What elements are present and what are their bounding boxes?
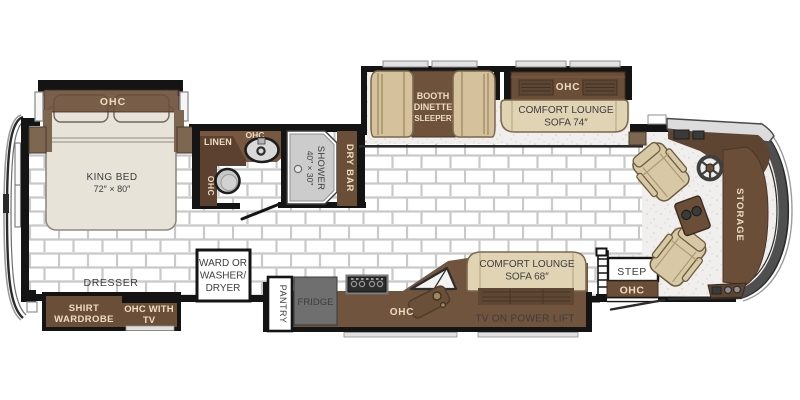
svg-text:DRESSER: DRESSER (84, 277, 139, 289)
svg-text:SOFA 74″: SOFA 74″ (544, 118, 588, 129)
svg-text:DINETTE: DINETTE (414, 102, 453, 112)
svg-text:SHOWER: SHOWER (315, 146, 326, 191)
svg-text:LINEN: LINEN (204, 137, 232, 147)
svg-text:BOOTH: BOOTH (417, 91, 450, 101)
svg-text:(SLEEPER): (SLEEPER) (412, 114, 455, 123)
svg-text:KING BED: KING BED (87, 172, 138, 183)
svg-text:OHC: OHC (100, 96, 126, 108)
svg-text:STEP: STEP (617, 266, 646, 278)
svg-text:TV: TV (143, 315, 156, 326)
svg-text:TV ON POWER LIFT: TV ON POWER LIFT (475, 314, 574, 325)
svg-text:OHC WITH: OHC WITH (124, 304, 174, 315)
svg-text:FRIDGE: FRIDGE (298, 297, 334, 308)
svg-text:STORAGE: STORAGE (734, 188, 745, 242)
svg-text:DRY BAR: DRY BAR (344, 144, 355, 192)
svg-text:OHC: OHC (390, 307, 415, 318)
svg-text:WASHER/: WASHER/ (200, 271, 247, 282)
svg-text:COMFORT LOUNGE: COMFORT LOUNGE (518, 105, 614, 116)
svg-text:WARD OR: WARD OR (199, 258, 247, 269)
svg-text:PANTRY: PANTRY (278, 285, 288, 324)
svg-text:DRYER: DRYER (206, 283, 241, 294)
svg-text:SOFA 68″: SOFA 68″ (505, 272, 549, 283)
svg-text:72″ × 80″: 72″ × 80″ (94, 184, 131, 194)
svg-text:WARDROBE: WARDROBE (54, 314, 114, 325)
svg-text:OHC: OHC (620, 285, 645, 297)
svg-text:SHIRT: SHIRT (69, 303, 100, 314)
svg-text:COMFORT LOUNGE: COMFORT LOUNGE (479, 259, 575, 270)
svg-text:40″ × 30″: 40″ × 30″ (305, 151, 315, 186)
svg-text:OHC: OHC (556, 82, 581, 93)
